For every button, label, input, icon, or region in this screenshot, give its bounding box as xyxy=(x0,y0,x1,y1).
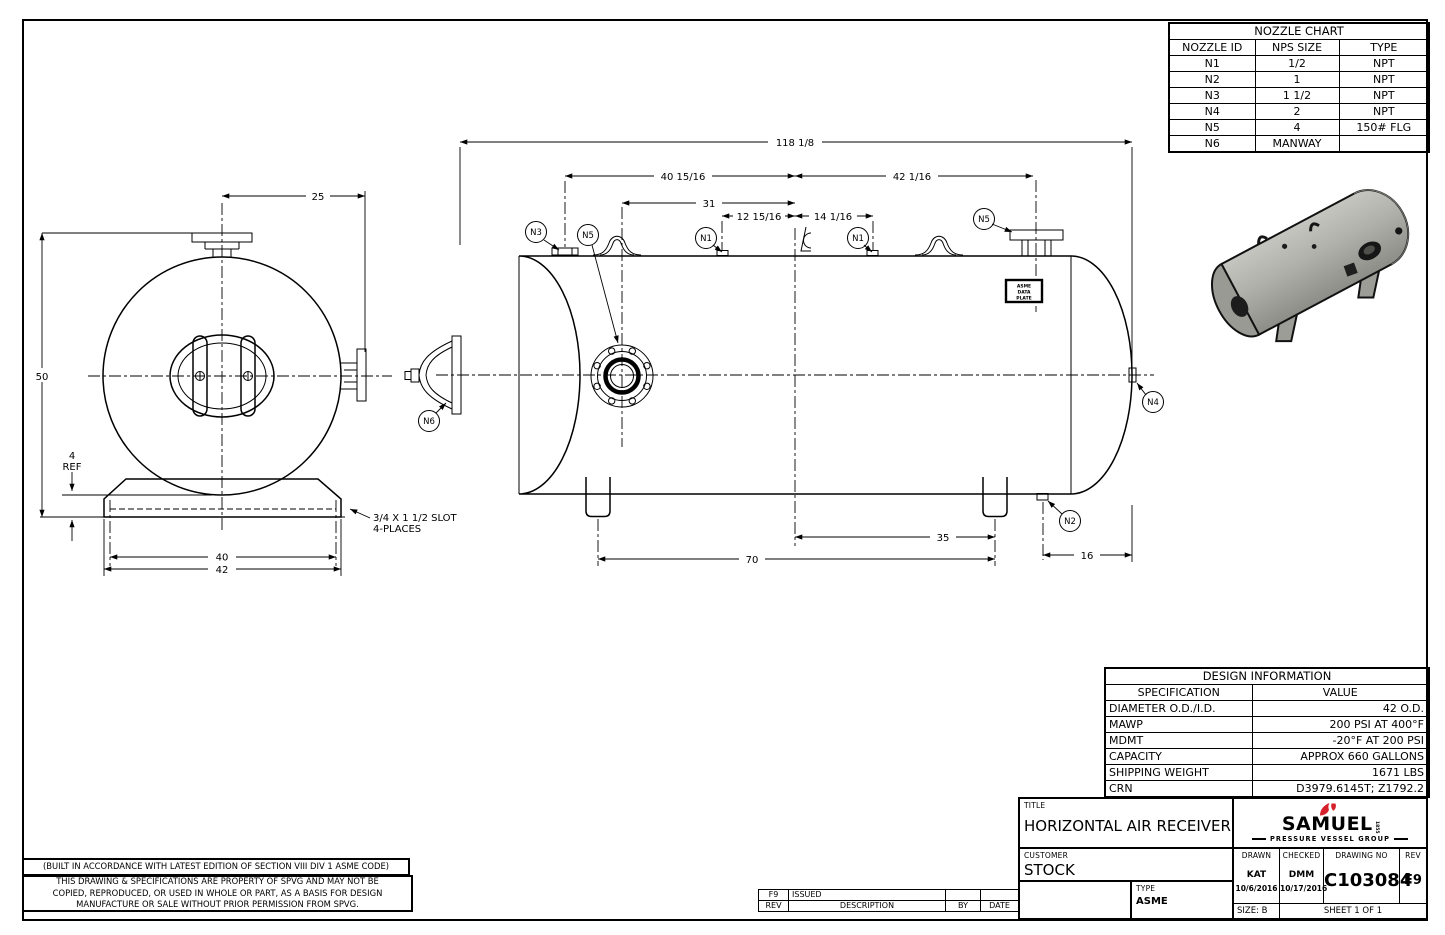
side-view-flange-n5 xyxy=(591,207,653,447)
title-label: TITLE xyxy=(1024,801,1232,810)
revision-description: ISSUED xyxy=(789,890,946,901)
table-row: N21NPT xyxy=(1169,72,1429,88)
revision-table: F9 ISSUED REV DESCRIPTION BY DATE xyxy=(758,889,1019,912)
table-row: N6MANWAY xyxy=(1169,136,1429,153)
type-label: TYPE xyxy=(1136,884,1232,893)
svg-text:N3: N3 xyxy=(530,228,542,238)
property-note-text: THIS DRAWING & SPECIFICATIONS ARE PROPER… xyxy=(53,876,383,910)
side-view-saddles xyxy=(586,477,1007,566)
dim-42: 42 xyxy=(104,519,341,576)
nozzle-chart-header: NPS SIZE xyxy=(1255,40,1339,56)
svg-text:4-PLACES: 4-PLACES xyxy=(373,524,421,535)
customer-label: CUSTOMER xyxy=(1024,851,1232,860)
blank-cell xyxy=(1020,882,1132,918)
nozzle-chart-header: NOZZLE ID xyxy=(1169,40,1255,56)
balloon-n1-left: N1 xyxy=(696,228,723,253)
svg-text:50: 50 xyxy=(36,372,49,383)
rev-label: REV xyxy=(1400,851,1426,860)
svg-text:4: 4 xyxy=(69,451,75,462)
svg-text:31: 31 xyxy=(703,199,716,210)
fitting-n3 xyxy=(552,181,578,255)
asme-data-plate: ASME DATA PLATE xyxy=(1006,280,1042,302)
dim-25: 25 xyxy=(222,190,365,352)
drawn-label: DRAWN xyxy=(1234,851,1279,860)
dim-42-1-16: 42 1/16 xyxy=(795,170,1033,183)
balloon-n5-left: N5 xyxy=(578,225,619,344)
table-row: CRND3979.6145T; Z1792.2 xyxy=(1105,781,1429,798)
lifting-lug-right xyxy=(915,236,963,255)
svg-text:118 1/8: 118 1/8 xyxy=(776,138,814,149)
revision-rev: F9 xyxy=(759,890,789,901)
drawn-by: KAT xyxy=(1234,870,1279,880)
svg-text:N5: N5 xyxy=(582,231,594,241)
revision-by xyxy=(946,890,981,901)
svg-text:REF: REF xyxy=(62,462,81,473)
revision-header: DATE xyxy=(981,901,1019,912)
nozzle-chart-table: NOZZLE CHART NOZZLE ID NPS SIZE TYPE N11… xyxy=(1168,22,1430,153)
svg-text:16: 16 xyxy=(1081,551,1094,562)
dim-16: 16 xyxy=(1043,505,1132,562)
samuel-logo-subtitle: PRESSURE VESSEL GROUP xyxy=(1252,835,1408,843)
table-row: N31 1/2NPT xyxy=(1169,88,1429,104)
design-info-header: VALUE xyxy=(1252,685,1429,701)
tank-3d-body xyxy=(1222,178,1422,335)
revision-header: DESCRIPTION xyxy=(789,901,946,912)
svg-text:25: 25 xyxy=(312,192,325,203)
design-info-table: DESIGN INFORMATION SPECIFICATION VALUE D… xyxy=(1104,667,1430,798)
sheet-value: SHEET 1 OF 1 xyxy=(1280,904,1426,918)
dim-40-15-16: 40 15/16 xyxy=(565,170,795,183)
checked-date: 10/17/2016 xyxy=(1280,884,1323,893)
checked-label: CHECKED xyxy=(1280,851,1323,860)
svg-text:DATA: DATA xyxy=(1017,290,1031,296)
svg-text:3/4 X 1 1/2 SLOT: 3/4 X 1 1/2 SLOT xyxy=(373,513,458,524)
table-row: N54150# FLG xyxy=(1169,120,1429,136)
balloon-n3: N3 xyxy=(526,222,560,251)
dim-12-15-16: 12 15/16 xyxy=(722,210,795,223)
revision-date xyxy=(981,890,1019,901)
revision-header: BY xyxy=(946,901,981,912)
svg-text:40 15/16: 40 15/16 xyxy=(661,172,706,183)
svg-text:42 1/16: 42 1/16 xyxy=(893,172,931,183)
centerline-symbol-icon xyxy=(801,227,811,251)
tank-3d-render xyxy=(1198,173,1433,367)
svg-text:N6: N6 xyxy=(423,417,435,427)
svg-text:40: 40 xyxy=(216,553,229,564)
dim-70: 70 xyxy=(598,553,995,566)
svg-text:PLATE: PLATE xyxy=(1016,296,1031,302)
table-row: DIAMETER O.D./I.D.42 O.D. xyxy=(1105,701,1429,717)
lifting-lug-left xyxy=(593,236,641,255)
svg-text:ASME: ASME xyxy=(1017,284,1031,290)
svg-text:12 15/16: 12 15/16 xyxy=(737,212,782,223)
balloon-n4: N4 xyxy=(1137,383,1164,413)
checked-by: DMM xyxy=(1280,870,1323,880)
end-view: 25 50 4 REF 40 xyxy=(30,190,458,576)
svg-text:N1: N1 xyxy=(700,234,712,244)
table-row: CAPACITYAPPROX 660 GALLONS xyxy=(1105,749,1429,765)
svg-text:N1: N1 xyxy=(852,234,864,244)
fitting-n1-left xyxy=(717,221,728,256)
nozzle-chart-title: NOZZLE CHART xyxy=(1169,23,1429,40)
table-row: N42NPT xyxy=(1169,104,1429,120)
svg-text:N2: N2 xyxy=(1064,517,1076,527)
table-row: F9 ISSUED xyxy=(759,890,1019,901)
dim-4-ref: 4 REF xyxy=(62,451,81,541)
title-block: TITLE HORIZONTAL AIR RECEIVER SAMUEL 185… xyxy=(1018,797,1428,920)
side-view: ASME DATA PLATE xyxy=(405,136,1164,566)
slot-note: 3/4 X 1 1/2 SLOT 4-PLACES xyxy=(350,509,458,535)
dim-overall-118: 118 1/8 xyxy=(460,136,1132,368)
design-info-title: DESIGN INFORMATION xyxy=(1105,668,1429,685)
drawing-sheet: 25 50 4 REF 40 xyxy=(0,0,1445,935)
nozzle-chart-header: TYPE xyxy=(1339,40,1429,56)
code-note: (BUILT IN ACCORDANCE WITH LATEST EDITION… xyxy=(22,858,410,876)
revision-header: REV xyxy=(759,901,789,912)
customer-value: STOCK xyxy=(1024,861,1232,879)
end-view-saddle xyxy=(40,479,345,517)
balloon-n6: N6 xyxy=(419,403,447,432)
table-row: N11/2NPT xyxy=(1169,56,1429,72)
rev-value: F9 xyxy=(1400,873,1426,888)
svg-text:14 1/16: 14 1/16 xyxy=(814,212,852,223)
balloon-n2: N2 xyxy=(1048,501,1081,532)
svg-text:35: 35 xyxy=(937,533,950,544)
svg-text:N4: N4 xyxy=(1147,398,1159,408)
svg-text:70: 70 xyxy=(746,555,759,566)
drawn-date: 10/6/2016 xyxy=(1234,884,1279,893)
dim-14-1-16: 14 1/16 xyxy=(795,210,873,223)
dim-50: 50 xyxy=(30,233,192,517)
table-row: MAWP200 PSI AT 400°F xyxy=(1105,717,1429,733)
dim-35: 35 xyxy=(795,531,995,544)
fitting-n2 xyxy=(1037,494,1048,561)
drawing-no: C103084 xyxy=(1324,870,1399,891)
drawing-no-label: DRAWING NO xyxy=(1324,851,1399,860)
type-value: ASME xyxy=(1136,896,1232,907)
samuel-logo-year: 1855 xyxy=(1374,821,1379,834)
samuel-logo-name: SAMUEL xyxy=(1282,816,1373,833)
size-value: SIZE: B xyxy=(1234,904,1280,918)
balloon-n5-right: N5 xyxy=(974,209,1013,233)
property-note: THIS DRAWING & SPECIFICATIONS ARE PROPER… xyxy=(22,875,413,912)
dim-40: 40 xyxy=(110,500,336,566)
table-row: SHIPPING WEIGHT1671 LBS xyxy=(1105,765,1429,781)
design-info-header: SPECIFICATION xyxy=(1105,685,1252,701)
end-view-side-flange xyxy=(340,349,366,401)
samuel-logo: SAMUEL 1855 PRESSURE VESSEL GROUP xyxy=(1234,799,1426,847)
table-row: MDMT-20°F AT 200 PSI xyxy=(1105,733,1429,749)
code-note-text: (BUILT IN ACCORDANCE WITH LATEST EDITION… xyxy=(43,861,389,872)
page-title: HORIZONTAL AIR RECEIVER xyxy=(1024,817,1232,835)
svg-text:42: 42 xyxy=(216,565,229,576)
dim-31: 31 xyxy=(622,197,795,210)
balloon-n1-right: N1 xyxy=(848,228,873,253)
svg-text:N5: N5 xyxy=(978,215,990,225)
